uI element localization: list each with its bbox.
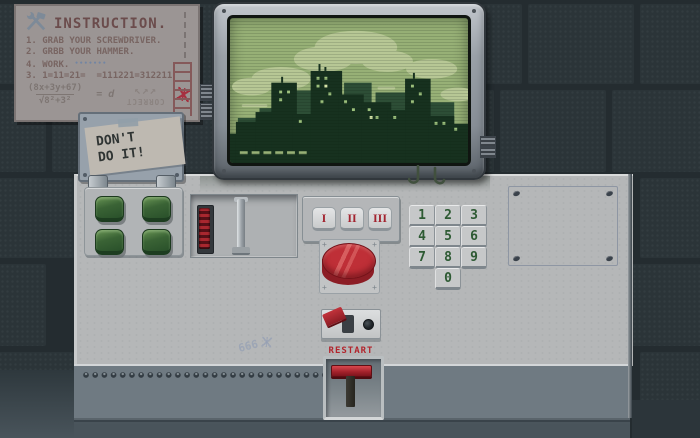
desk-base	[74, 424, 630, 438]
work-dots: •••••••	[75, 60, 107, 67]
screw-icon: +	[322, 285, 327, 291]
tape-icon	[118, 118, 139, 127]
indicator-led	[363, 319, 374, 330]
ladder-doodle-icon	[173, 62, 192, 116]
game-scene: INSTRUCTION. 1. GRAB YOUR SCREWDRIVER. 2…	[0, 0, 700, 438]
arrows-up-icon: ↖↗↗	[134, 84, 157, 97]
formula-result: = d	[96, 89, 114, 100]
warning-sign-panel: DON'T DO IT!	[78, 112, 184, 182]
monitor-screen	[230, 18, 468, 163]
keypad-key-8[interactable]: 8	[435, 247, 461, 269]
formula-denominator: √8²+3²	[36, 94, 75, 106]
city-skyline	[230, 18, 468, 163]
instruction-line: 1. GRAB YOUR SCREWDRIVER.	[26, 36, 172, 47]
green-button-2[interactable]	[142, 196, 171, 222]
screw-icon	[83, 173, 87, 177]
dashed-line-doodle	[184, 12, 186, 58]
warning-note: DON'T DO IT!	[84, 116, 185, 175]
screw-icon	[605, 190, 613, 197]
keypad-key-0[interactable]: 0	[435, 268, 461, 290]
instruction-line: 4. WORK. •••••••	[26, 58, 172, 71]
monitor-connector-right-top	[480, 136, 496, 147]
red-coil-slider[interactable]	[199, 208, 210, 249]
instruction-line: 2. GRBB YOUR HAMMER.	[26, 47, 172, 58]
monitor-connector-right-bottom	[480, 147, 496, 158]
toggle-switch-panel	[321, 309, 381, 339]
screw-icon: +	[322, 242, 327, 248]
big-red-button[interactable]	[322, 243, 376, 279]
floor-shadow-right	[632, 400, 700, 438]
screw-icon	[512, 190, 520, 197]
correct-annotation: ↖↗↗ CORRECT	[126, 84, 165, 106]
screw-icon	[222, 169, 226, 173]
wall-tile	[640, 4, 700, 84]
keypad-key-7[interactable]: 7	[409, 247, 435, 269]
keypad-key-6[interactable]: 6	[461, 226, 487, 248]
keypad-key-1[interactable]: 1	[409, 205, 435, 227]
correct-label: CORRECT	[126, 97, 165, 106]
rivet-row	[82, 371, 328, 380]
monitor	[212, 2, 486, 180]
screw-icon	[222, 9, 226, 13]
wall-tile	[640, 178, 700, 258]
green-button-1[interactable]	[95, 196, 124, 222]
wall-tile	[500, 90, 606, 172]
graffiti-star-icon	[261, 336, 272, 347]
green-button-panel	[84, 187, 183, 256]
instruction-line: 3. 1=11=21= =111221=312211	[26, 71, 172, 82]
formula-numerator: (8x+3y+67)	[26, 83, 84, 94]
screw-icon: +	[372, 285, 377, 291]
desk-right-edge	[628, 174, 632, 418]
screw-icon	[83, 117, 87, 121]
monitor-bezel	[227, 15, 471, 166]
roman-button-ii[interactable]: II	[340, 207, 364, 231]
screw-icon	[605, 255, 613, 262]
slider-compartment	[190, 194, 298, 258]
poster-title: INSTRUCTION.	[54, 16, 167, 32]
restart-lever-stem	[346, 376, 355, 407]
keypad-key-2[interactable]: 2	[435, 205, 461, 227]
green-button-4[interactable]	[142, 229, 171, 255]
metal-rail	[237, 199, 245, 249]
roman-button-i[interactable]: I	[312, 207, 336, 231]
screw-icon	[472, 169, 476, 173]
monitor-hook-icons	[408, 165, 446, 196]
roman-button-iii[interactable]: III	[368, 207, 392, 231]
screw-icon: +	[372, 242, 377, 248]
restart-lever-slot	[323, 356, 384, 420]
wall-tile	[528, 4, 634, 84]
roman-button-panel: I II III	[302, 196, 400, 242]
screw-icon	[512, 255, 520, 262]
keypad-key-5[interactable]: 5	[435, 226, 461, 248]
wall-tile	[0, 178, 74, 258]
green-button-3[interactable]	[95, 229, 124, 255]
keypad-key-9[interactable]: 9	[461, 247, 487, 269]
hammer-wrench-icon	[24, 12, 48, 36]
restart-label: RESTART	[327, 346, 375, 356]
formula-fraction: (8x+3y+67) √8²+3²	[26, 83, 84, 106]
floor-shadow-left	[0, 370, 74, 438]
wall-tile	[612, 90, 700, 172]
keypad-key-3[interactable]: 3	[461, 205, 487, 227]
keypad-key-4[interactable]: 4	[409, 226, 435, 248]
wall-tile	[0, 264, 46, 346]
instruction-poster: INSTRUCTION. 1. GRAB YOUR SCREWDRIVER. 2…	[14, 4, 200, 122]
blank-access-panel	[508, 186, 618, 266]
rail-foot	[232, 247, 250, 255]
screw-icon	[472, 9, 476, 13]
